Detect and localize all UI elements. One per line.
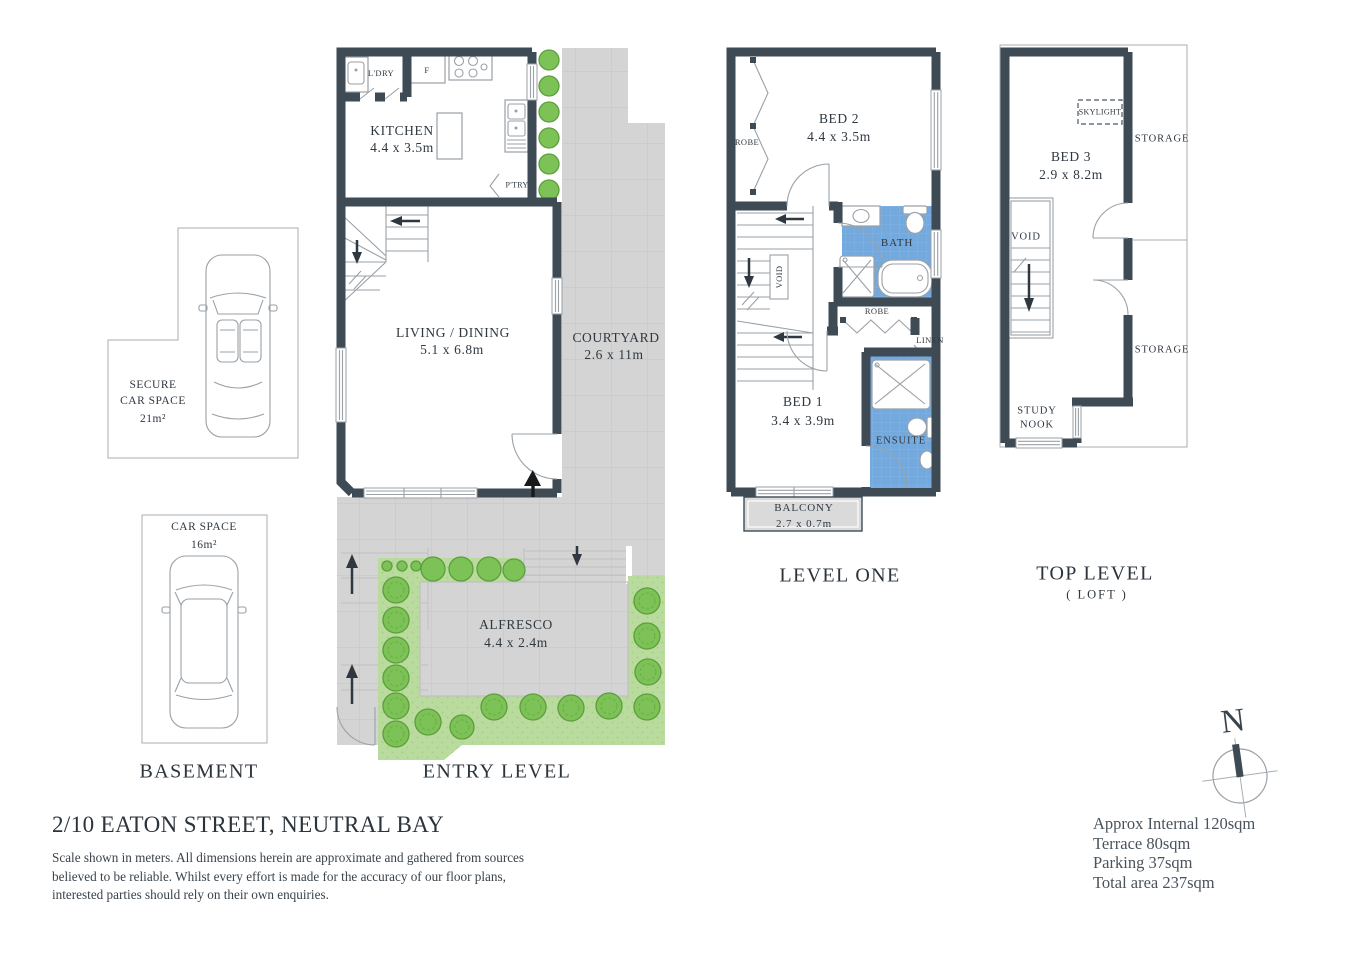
hall-robe-doors bbox=[843, 320, 913, 333]
page-title: 2/10 EATON STREET, NEUTRAL BAY bbox=[52, 812, 444, 838]
secure-car-space-area-label: 21m² bbox=[140, 413, 166, 425]
top-level-title: TOP LEVEL bbox=[1036, 563, 1154, 586]
balcony-room-label: BALCONY bbox=[774, 502, 833, 514]
level-one-title: LEVEL ONE bbox=[779, 565, 900, 588]
bed1-dim-label: 3.4 x 3.9m bbox=[771, 413, 835, 429]
bath-label: BATH bbox=[881, 237, 913, 249]
compass-icon bbox=[1197, 733, 1283, 823]
laundry-label: L'DRY bbox=[368, 68, 394, 78]
secure-car-space-label-2: CAR SPACE bbox=[120, 395, 186, 407]
compass-north-label: N bbox=[1219, 702, 1247, 742]
storage-upper-label: STORAGE bbox=[1135, 134, 1190, 145]
living-dining-room-label: LIVING / DINING bbox=[396, 325, 510, 341]
alfresco-room-label: ALFRESCO bbox=[479, 617, 553, 633]
alfresco-dim-label: 4.4 x 2.4m bbox=[484, 635, 548, 651]
kitchen-room-label: KITCHEN bbox=[370, 123, 433, 139]
courtyard-dim-label: 2.6 x 11m bbox=[584, 347, 643, 363]
summary-parking: Parking 37sqm bbox=[1093, 853, 1255, 873]
secure-car-space-label-1: SECURE bbox=[129, 379, 176, 391]
bed2-room-label: BED 2 bbox=[819, 111, 859, 127]
top-level-stairs bbox=[1008, 198, 1053, 338]
living-dining-dim-label: 5.1 x 6.8m bbox=[420, 342, 484, 358]
top-level-plan bbox=[1000, 45, 1187, 448]
summary-total: Total area 237sqm bbox=[1093, 873, 1255, 893]
courtyard-room-label: COURTYARD bbox=[572, 330, 659, 346]
area-summary: Approx Internal 120sqm Terrace 80sqm Par… bbox=[1093, 814, 1255, 892]
entry-door-arc bbox=[512, 434, 557, 479]
void-label-top-level: VOID bbox=[1011, 232, 1041, 243]
car-space-label: CAR SPACE bbox=[171, 521, 237, 533]
floorplan-page: L'DRY F KITCHEN 4.4 x 3.5m P'TRY LIVING … bbox=[0, 0, 1358, 960]
top-level-subtitle: ( LOFT ) bbox=[1066, 588, 1128, 603]
summary-terrace: Terrace 80sqm bbox=[1093, 834, 1255, 854]
study-nook-label-1: STUDY bbox=[1017, 406, 1057, 417]
skylight-label: SKYLIGHT bbox=[1079, 108, 1121, 117]
balcony-dim-label: 2.7 x 0.7m bbox=[776, 518, 832, 530]
hall-robe-label: ROBE bbox=[865, 306, 889, 316]
storage-lower-label: STORAGE bbox=[1135, 345, 1190, 356]
convertible-car-icon bbox=[199, 255, 277, 437]
bed2-dim-label: 4.4 x 3.5m bbox=[807, 129, 871, 145]
basement-title: BASEMENT bbox=[140, 761, 259, 784]
linen-label: LINEN bbox=[916, 335, 944, 345]
void-label-level-one: VOID bbox=[774, 266, 784, 289]
pantry-label: P'TRY bbox=[506, 181, 529, 190]
ensuite-label: ENSUITE bbox=[876, 436, 926, 447]
summary-internal: Approx Internal 120sqm bbox=[1093, 814, 1255, 834]
top-level-doors bbox=[1093, 203, 1128, 315]
disclaimer-text: Scale shown in meters. All dimensions he… bbox=[52, 849, 536, 905]
fridge-label: F bbox=[424, 65, 429, 75]
study-nook-label-2: NOOK bbox=[1020, 420, 1054, 431]
bed2-robe-label: ROBE bbox=[735, 137, 759, 147]
car-space-area-label: 16m² bbox=[191, 539, 217, 551]
bed3-dim-label: 2.9 x 8.2m bbox=[1039, 167, 1103, 183]
bed3-room-label: BED 3 bbox=[1051, 149, 1091, 165]
kitchen-dim-label: 4.4 x 3.5m bbox=[370, 140, 434, 156]
bed1-room-label: BED 1 bbox=[783, 394, 823, 410]
basement-plan bbox=[108, 228, 298, 743]
entry-level-title: ENTRY LEVEL bbox=[423, 761, 572, 784]
car-icon bbox=[162, 556, 246, 728]
